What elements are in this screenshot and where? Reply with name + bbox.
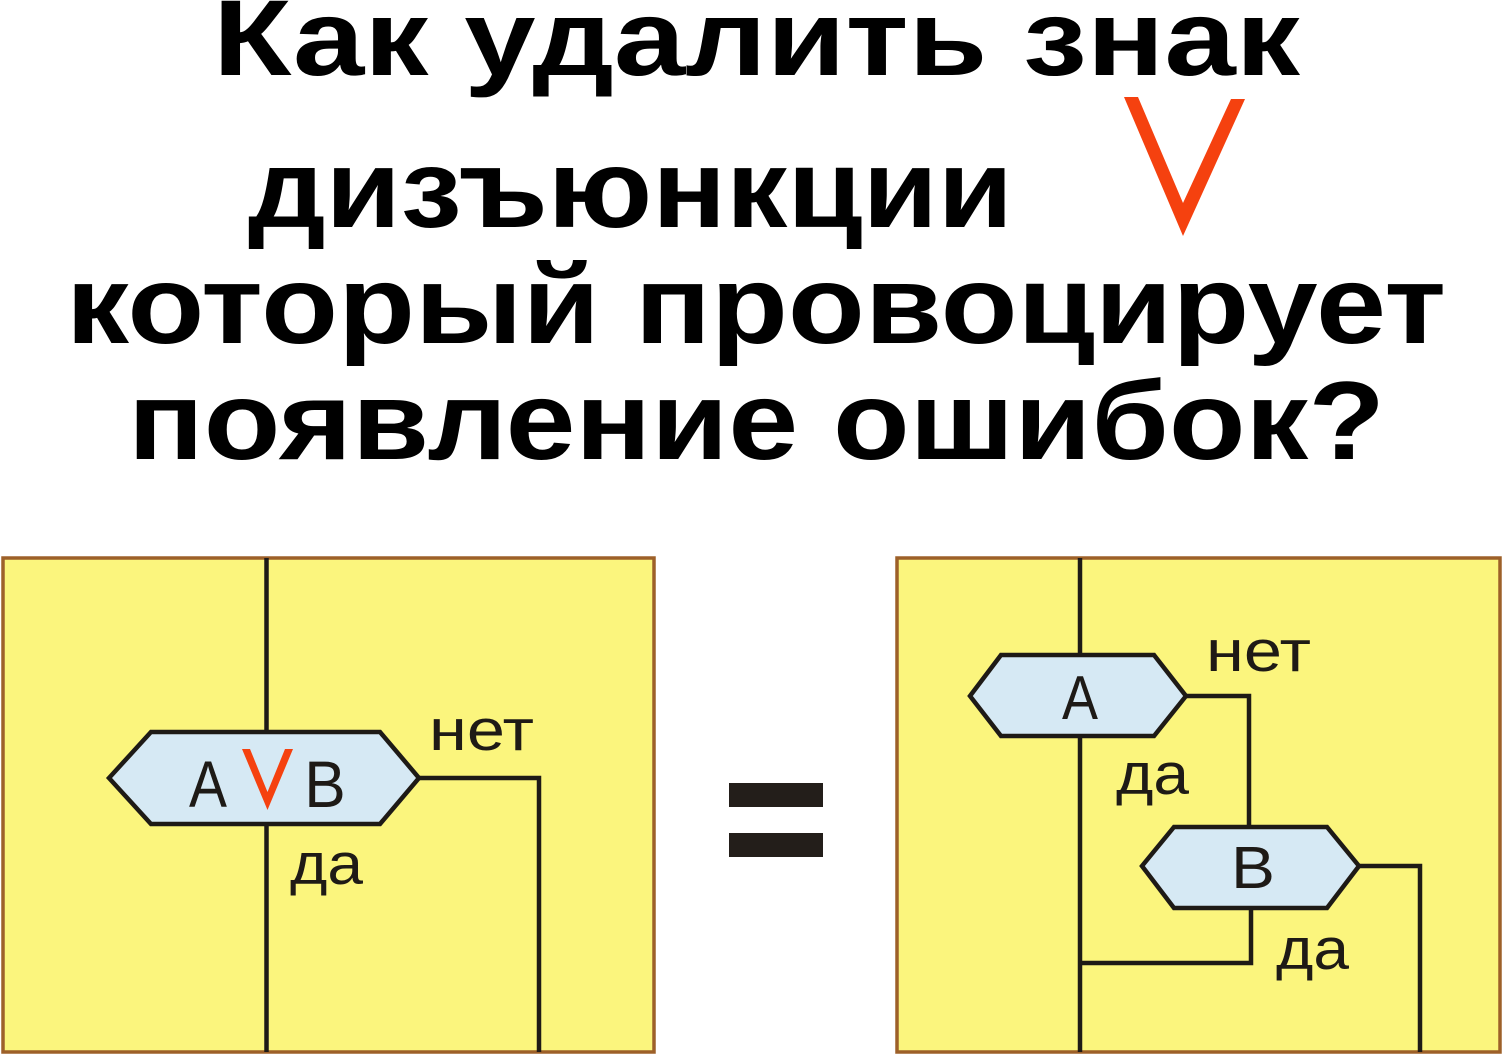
svg-text:да: да	[290, 832, 364, 897]
svg-text:нет: нет	[1206, 619, 1311, 684]
svg-text:который провоцирует: который провоцирует	[66, 243, 1446, 367]
svg-text:B: B	[1231, 835, 1275, 901]
svg-text:Как удалить знак: Как удалить знак	[213, 0, 1301, 98]
svg-text:да: да	[1276, 917, 1350, 982]
svg-text:A: A	[189, 747, 227, 821]
svg-text:появление ошибок?: появление ошибок?	[128, 359, 1385, 483]
svg-text:A: A	[1062, 664, 1099, 733]
svg-text:дизъюнкции: дизъюнкции	[248, 127, 1013, 251]
svg-text:нет: нет	[429, 698, 534, 763]
svg-text:да: да	[1116, 742, 1190, 807]
svg-text:B: B	[304, 747, 346, 821]
